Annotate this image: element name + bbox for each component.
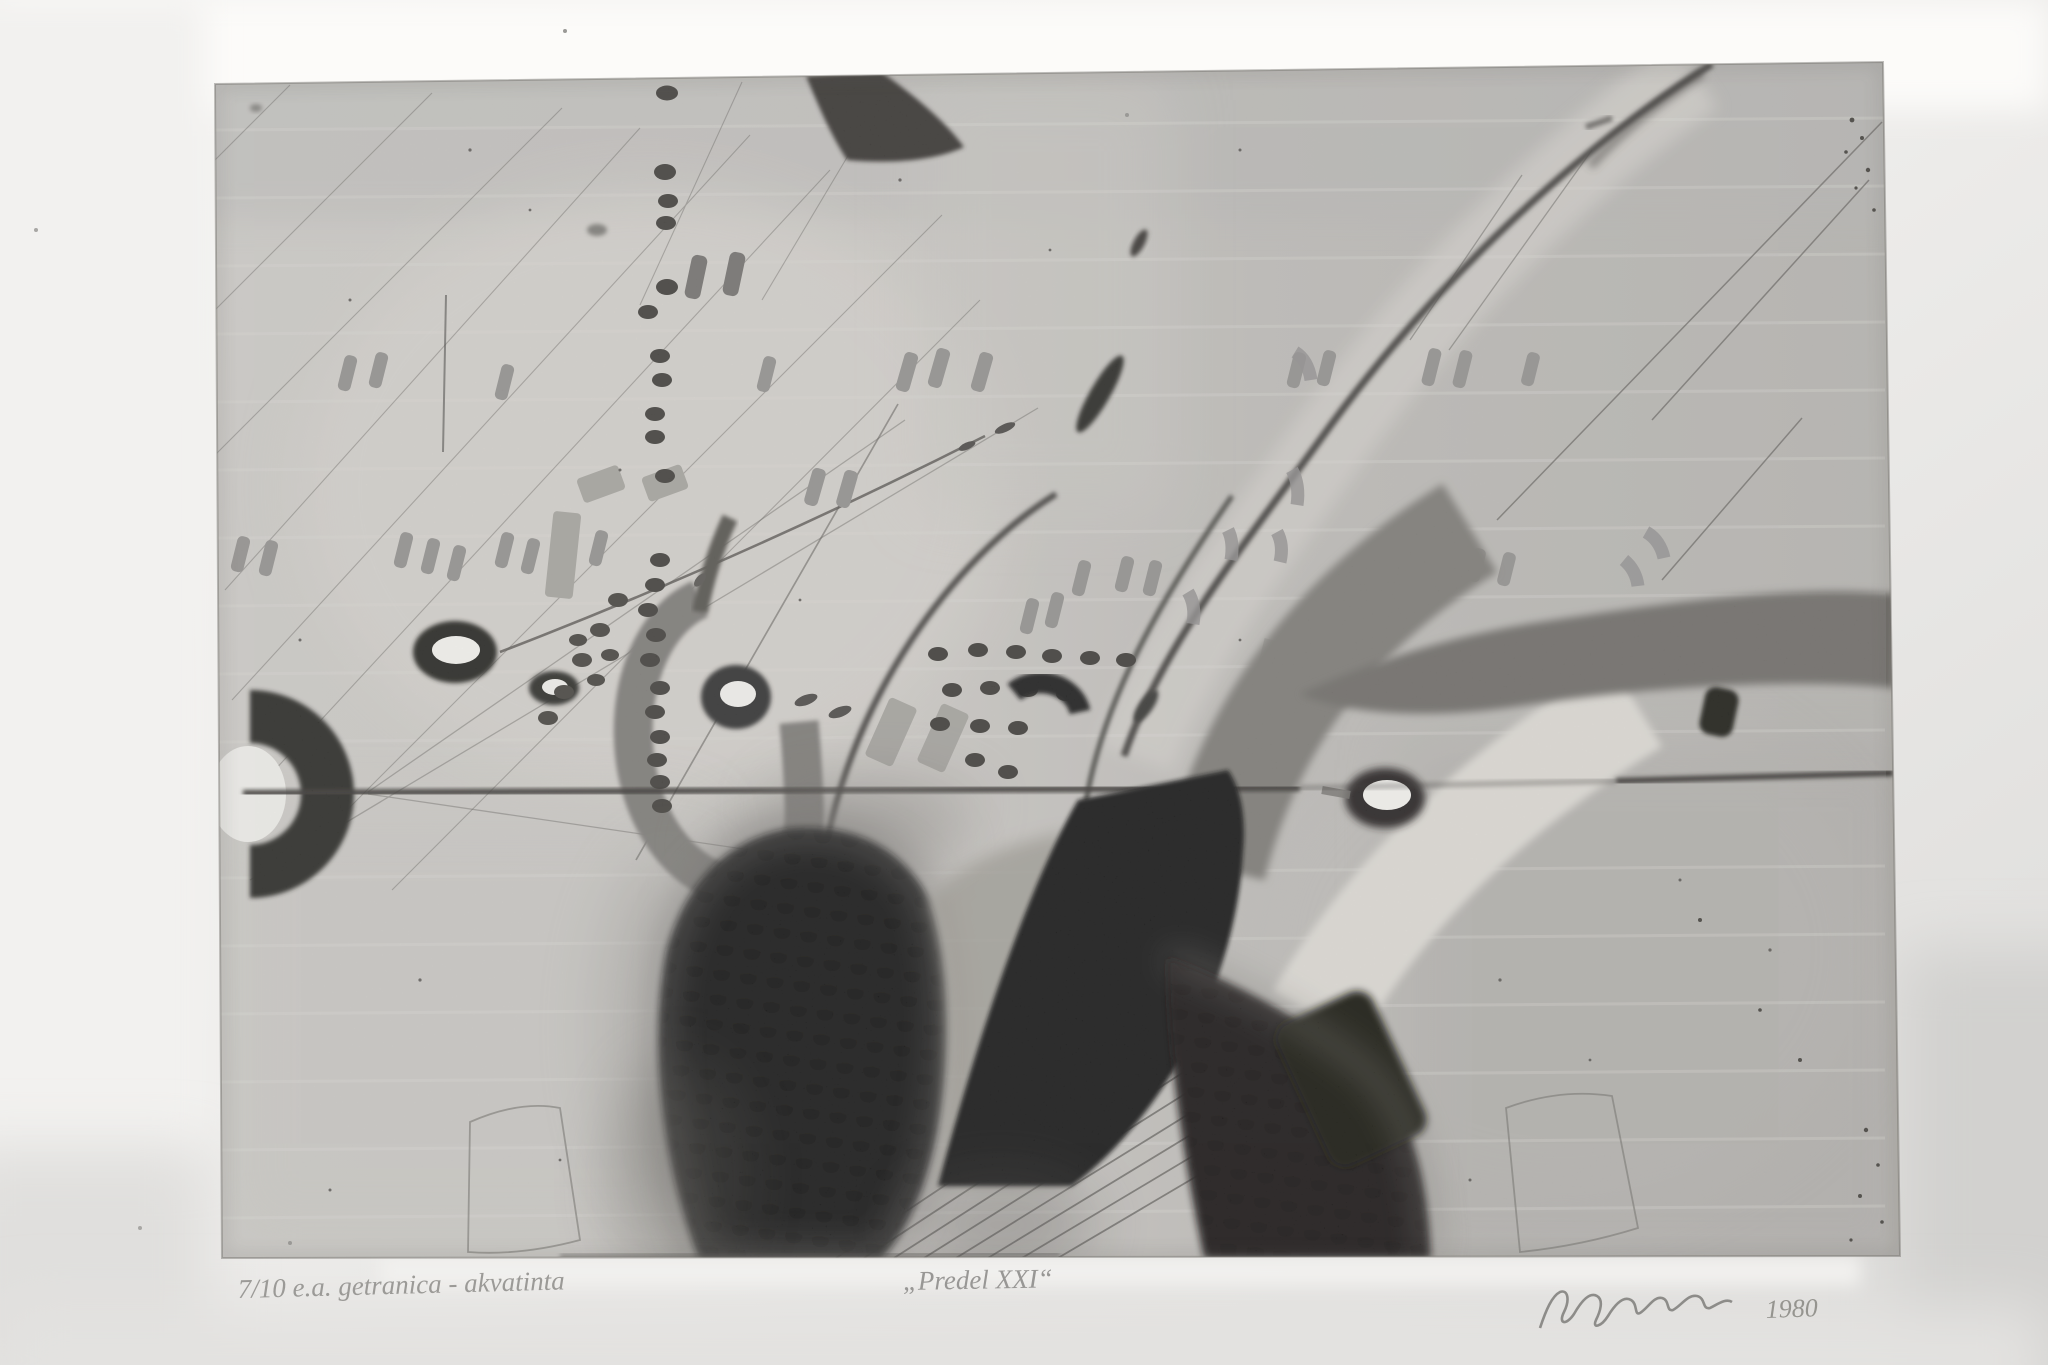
svg-text:„Predel XXI“: „Predel XXI“ xyxy=(903,1263,1053,1296)
svg-text:1980: 1980 xyxy=(1765,1293,1818,1324)
